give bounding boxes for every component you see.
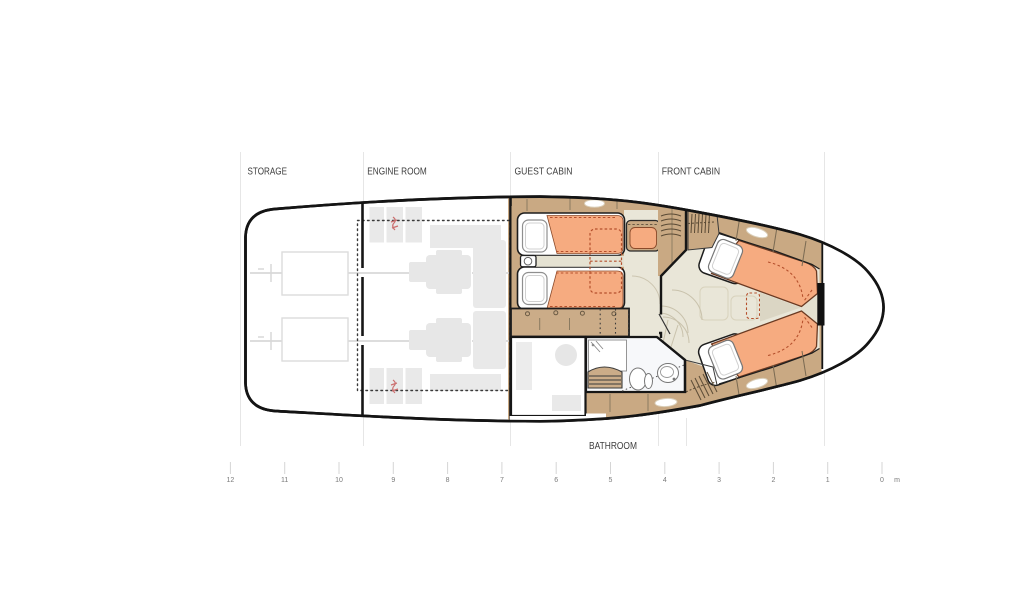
svg-text:1: 1 <box>826 477 830 484</box>
svg-text:m: m <box>894 477 900 484</box>
svg-text:STORAGE: STORAGE <box>248 167 288 178</box>
svg-text:12: 12 <box>227 477 235 484</box>
svg-text:ENGINE ROOM: ENGINE ROOM <box>367 167 427 178</box>
svg-text:6: 6 <box>554 477 558 484</box>
svg-text:0: 0 <box>880 477 884 484</box>
svg-text:5: 5 <box>609 477 613 484</box>
svg-text:FRONT CABIN: FRONT CABIN <box>662 167 721 178</box>
svg-text:11: 11 <box>281 477 288 484</box>
svg-text:GUEST CABIN: GUEST CABIN <box>515 167 573 178</box>
svg-text:BATHROOM: BATHROOM <box>589 441 637 452</box>
svg-text:2: 2 <box>771 477 775 484</box>
svg-text:3: 3 <box>717 477 721 484</box>
svg-text:8: 8 <box>446 477 450 484</box>
svg-text:7: 7 <box>500 477 504 484</box>
svg-text:10: 10 <box>335 477 343 484</box>
svg-text:9: 9 <box>391 477 395 484</box>
svg-text:4: 4 <box>663 477 667 484</box>
